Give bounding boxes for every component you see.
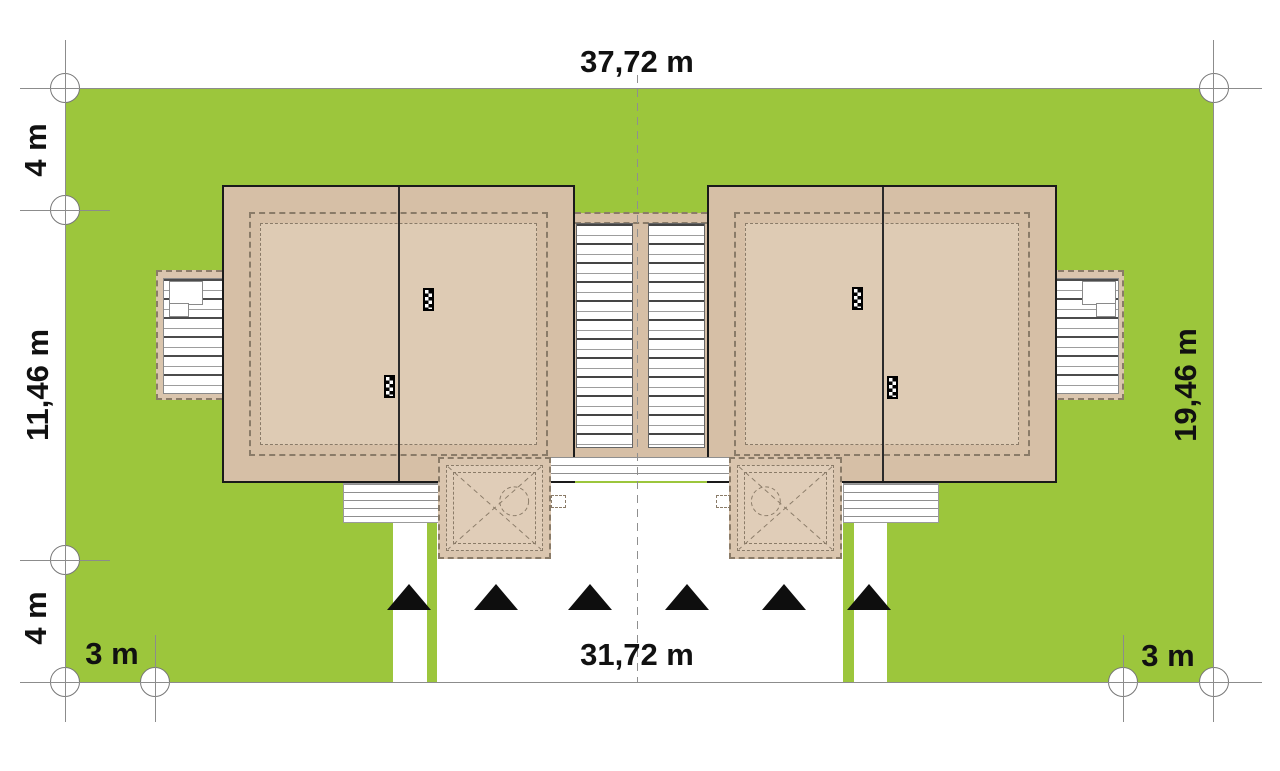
boundary-line-bottom [20,682,1262,683]
boundary-line-left [65,40,66,722]
access-triangle-marker [474,584,518,610]
dim-top-width: 37,72 m [580,44,694,80]
dim-bottom-margin-left: 3 m [85,636,138,672]
terrace-step-right [1082,281,1116,305]
access-triangle-marker [665,584,709,610]
access-triangle-marker [568,584,612,610]
between-houses-eave-line-1 [575,212,707,214]
house-left-roof [222,185,575,483]
canopy-left-drain [551,495,566,508]
exterior-steps-left [343,483,440,523]
chimney-right-1 [852,287,863,310]
house-right-ridge [882,187,884,481]
pergola-panel-right [648,223,705,448]
site-plan: 37,72 m 4 m 11,46 m 4 m 3 m 31,72 m 3 m … [0,0,1280,771]
boundary-line-right [1213,40,1214,722]
dim-left-depth: 11,46 m [20,329,56,441]
exterior-steps-right [843,483,939,523]
chimney-left-1 [423,288,434,311]
survey-tick-left-lower [20,560,110,561]
access-triangle-marker [762,584,806,610]
pergola-panel-left [576,223,633,448]
dim-bottom-margin-right: 3 m [1141,638,1194,674]
house-right-roof [707,185,1057,483]
survey-tick-bottom-right [1123,635,1124,722]
access-triangle-marker [387,584,431,610]
chimney-right-2 [887,376,898,399]
canopy-left-roof-lines [440,459,549,557]
house-left-ridge [398,187,400,481]
terrace-step-left [169,281,203,305]
shared-entry-steps [551,457,729,481]
entrance-canopy-left [438,457,551,559]
access-triangle-marker [847,584,891,610]
entrance-canopy-right [729,457,842,559]
chimney-left-2 [384,375,395,398]
terrace-step-right-2 [1096,303,1116,317]
boundary-line-top [20,88,1262,89]
dim-left-setback-top: 4 m [18,123,54,176]
canopy-right-drain [716,495,731,508]
terrace-step-left-2 [169,303,189,317]
dim-right-depth: 19,46 m [1168,328,1204,442]
survey-tick-left-upper [20,210,110,211]
plot-center-divider [637,75,638,682]
survey-tick-bottom-left [155,635,156,722]
dim-bottom-width: 31,72 m [580,637,694,673]
dim-left-setback-bottom: 4 m [18,591,54,644]
canopy-right-roof-lines [731,459,840,557]
